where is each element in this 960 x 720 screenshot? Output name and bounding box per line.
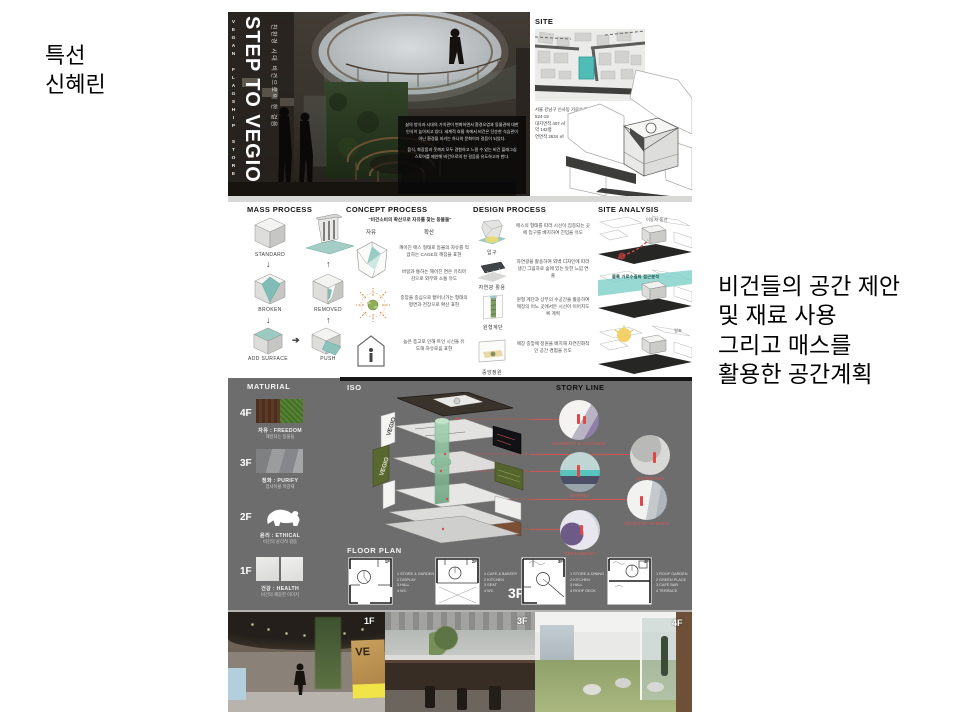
stool	[457, 688, 467, 710]
arrow-up-icon: ↑	[326, 260, 331, 269]
mass-label-removed: REMOVED	[302, 307, 354, 313]
arrow-down-icon: ↓	[266, 316, 271, 325]
iso-heading: ISO	[347, 383, 362, 392]
hero-subtitle-vertical: 친환경 시대 비건으로의 한 걸음	[270, 24, 279, 164]
vine-column	[315, 617, 341, 689]
site-panel: SITE 서울 강남구 신사동 가로수길 524-19 대지면적 407 ㎡ 약…	[530, 12, 692, 196]
hero-title-vertical: STEP TO VEGIO	[240, 16, 263, 196]
person-silhouette	[294, 662, 306, 698]
author-name: 신혜린	[45, 71, 106, 100]
concept-process-heading: CONCEPT PROCESS	[346, 205, 427, 214]
concept-item-3: 높은 층고로 인해 트인 시선을 유도해 자유로움 표현	[402, 338, 466, 352]
plan-label-3f: 3F	[558, 559, 563, 564]
right-caption-line: 그리고 매스를	[718, 331, 900, 360]
slide: 특선 신혜린 비건들의 공간 제안 및 재료 사용 그리고 매스를 활용한 공간…	[0, 0, 960, 720]
black-divider-bar	[340, 377, 692, 381]
mass-cube-standard	[252, 216, 288, 250]
design-label-4: 중앙정원	[468, 369, 516, 376]
story-caption-2: MARKET	[548, 493, 612, 498]
material-sub-4f: 해방되는 동물들	[242, 434, 318, 440]
hero-intro-paragraph-1: 삶의 방식과 시대의 가치관이 변화하면서 환경오염과 동물권에 대한 인식이 …	[405, 122, 519, 142]
polar-bear-icon	[262, 503, 304, 530]
ceiling-lights	[246, 620, 247, 621]
site-analysis-caption-3: 일조	[674, 328, 682, 334]
annotation-line	[530, 529, 560, 530]
design-text-2: 자연광을 활용하여 외벽 디자인에 따라 생긴 그림자로 숲에 있는 듯한 느낌…	[516, 258, 590, 279]
mass-label-push: PUSH	[306, 356, 350, 362]
story-vignette-4	[630, 435, 670, 475]
design-label-2: 자연광 활용	[468, 284, 516, 291]
design-text-4: 매장 중앙에 정원을 배치해 자연친화적인 공간 경험을 유도	[516, 340, 590, 354]
left-caption: 특선 신혜린	[45, 42, 106, 99]
concept-quote: "비건소비의 확산으로 자유를 찾는 동물들"	[356, 217, 464, 223]
hero-photo: VEGAN FLAGSHIP STORE STEP TO VEGIO 친환경 시…	[228, 12, 530, 196]
award-label: 특선	[45, 42, 106, 71]
spiral-stair-diagram-icon	[476, 292, 510, 322]
mass-process-heading: MASS PROCESS	[247, 205, 312, 214]
floor-plan-4f: 4F	[607, 557, 652, 605]
plan-label-4f: 4F	[644, 559, 649, 564]
central-garden-diagram-icon	[475, 337, 509, 367]
site-analysis-circulation	[598, 214, 692, 266]
design-text-3: 원형 계단과 상부의 수공간을 활용하여 매장의 어느 곳에서든 시선이 이어지…	[516, 296, 590, 317]
material-title-1f: 건강 : HEALTH	[242, 585, 318, 592]
arrow-up-icon: ↑	[326, 316, 331, 325]
annotation-line	[530, 499, 627, 500]
annotation-line	[530, 471, 560, 472]
right-caption: 비건들의 공간 제안 및 재료 사용 그리고 매스를 활용한 공간계획	[718, 272, 900, 390]
render-4f: 4F	[535, 612, 692, 712]
plan-legend-4f: 1 ROOF GARDEN 2 GREEN PLACE 3 CAFE BAR 4…	[656, 572, 696, 595]
hero-intro-paragraph-2: 음식, 화장품과 옷까지 모두 경험하고 느낄 수 있는 비건 플래그십 스토어…	[405, 147, 519, 161]
render-label-1f: 1F	[364, 616, 375, 626]
material-sub-1f: 비건의 깨끗한 이미지	[242, 592, 318, 598]
story-caption-3: RESTAURANT	[548, 551, 612, 556]
story-line-heading: STORY LINE	[556, 383, 604, 392]
material-sub-2f: 비건의 윤리적 걸음	[242, 539, 318, 545]
site-analysis-caption-2: 블록 가로수길의 접근분석	[612, 274, 659, 280]
floor-plan-3f: 3F	[521, 557, 566, 605]
concept-item-1a: 깨어진 매스 형태로 동물의 자유를 억압하는 CAGE의 깨짐을 표현	[398, 244, 470, 258]
stool	[425, 686, 435, 708]
material-heading: MATURIAL	[247, 382, 290, 391]
stool	[583, 684, 601, 695]
mass-final-building	[304, 212, 356, 258]
design-process-heading: DESIGN PROCESS	[473, 205, 546, 214]
ve-kiosk: VE	[351, 639, 385, 698]
mass-cube-removed	[310, 272, 346, 306]
plan-legend-1f: 1 STORE & GARDEN 2 DISPLAY 3 HALL 4 WC	[397, 572, 437, 595]
skylight-diagram-icon	[475, 258, 509, 284]
floor-plan-heading: FLOOR PLAN	[347, 546, 402, 555]
floor-plan-2f: 2F	[435, 557, 480, 605]
arrow-right-icon: ➔	[292, 336, 300, 345]
concept-item-1b: 바람과 통하는 깨어진 면은 유리마감으로 외부와 소통 유도	[400, 268, 468, 282]
story-caption-1: COSMETIC & CLOTHING	[547, 441, 611, 446]
site-axon-building	[624, 118, 678, 176]
wood-counter	[385, 660, 535, 690]
site-analysis-caption-1: 이동자 동선	[646, 217, 668, 223]
stool	[489, 686, 501, 710]
material-floor-3f: 3F	[240, 458, 252, 469]
story-vignette-5	[627, 480, 667, 520]
design-label-1: 입구	[471, 249, 513, 256]
material-floor-1f: 1F	[240, 566, 252, 577]
mass-label-broken: BROKEN	[244, 307, 296, 313]
design-label-3: 원형계단	[470, 324, 516, 331]
ve-sign: VE	[355, 646, 380, 659]
site-heading: SITE	[535, 17, 553, 26]
separator-bar	[228, 196, 692, 202]
story-vignette-2	[560, 452, 600, 492]
material-floor-2f: 2F	[240, 512, 252, 523]
mass-cube-broken	[252, 272, 288, 306]
site-analysis-heading: SITE ANALYSIS	[598, 205, 659, 214]
blue-object	[228, 668, 246, 700]
render-label-4f: 4F	[672, 618, 683, 628]
plan-legend-3f: 1 STORE & DINING 2 KITCHEN 3 HALL 4 ROOF…	[570, 572, 610, 595]
concept-key-right: 확산	[424, 228, 434, 236]
indoor-trees	[429, 626, 463, 656]
faceted-mass-icon	[355, 240, 389, 280]
hero-intro-box: 삶의 방식과 시대의 가치관이 변화하면서 환경오염과 동물권에 대한 인식이 …	[398, 116, 526, 194]
render-3f: 3F	[385, 612, 535, 712]
mass-label-standard: STANDARD	[244, 252, 296, 258]
design-text-1: 매스의 형태를 따라 시선이 집중되는 곳에 입구를 배치하여 진입을 유도	[516, 222, 590, 236]
annotation-line	[530, 419, 559, 420]
iso-exploded-axon: VEGIO VEGIO	[345, 392, 530, 544]
concept-key-left: 자유	[366, 228, 376, 236]
material-swatch-1f	[256, 557, 303, 581]
arrow-down-icon: ↓	[266, 260, 271, 269]
story-vignette-3	[560, 510, 600, 550]
mass-label-add-surface: ADD SURFACE	[242, 356, 294, 362]
render-1f: VE 1F	[228, 612, 385, 712]
mass-cube-add-surface	[250, 326, 286, 356]
stool	[647, 682, 664, 692]
plan-label-2f: 2F	[472, 559, 477, 564]
right-caption-line: 활용한 공간계획	[718, 360, 900, 389]
plant-figure	[661, 636, 668, 676]
concept-item-2: 중앙을 중심으로 뻗어나가는 형태의 평면과 천장으로 확산 표현	[400, 294, 468, 308]
material-swatch-4f	[256, 399, 303, 423]
render-label-3f: 3F	[517, 616, 528, 626]
site-axon-drawing	[566, 68, 692, 196]
material-swatch-3f	[256, 449, 303, 473]
hero-side-vertical-text: VEGAN FLAGSHIP STORE	[231, 20, 236, 192]
story-caption-5: ROOFTOP GARDEN	[615, 521, 679, 526]
mass-cube-push	[308, 326, 346, 356]
material-title-2f: 윤리 : ETHICAL	[242, 532, 318, 539]
right-caption-line: 및 재료 사용	[718, 301, 900, 330]
story-vignette-1	[559, 400, 599, 440]
material-floor-4f: 4F	[240, 408, 252, 419]
material-title-4f: 자유 : FREEDOM	[242, 427, 318, 434]
right-caption-line: 비건들의 공간 제안	[718, 272, 900, 301]
entrance-diagram-icon	[475, 218, 509, 248]
stool	[615, 678, 631, 688]
window-opening	[540, 625, 574, 665]
floor-plan-1f: 1F	[348, 557, 393, 605]
material-title-3f: 정화 : PURIFY	[242, 477, 318, 484]
radial-spread-icon	[354, 286, 392, 324]
plan-label-1f: 1F	[385, 559, 390, 564]
house-outline-icon	[356, 334, 386, 368]
material-sub-3f: 업사이클 마감재	[242, 484, 318, 490]
